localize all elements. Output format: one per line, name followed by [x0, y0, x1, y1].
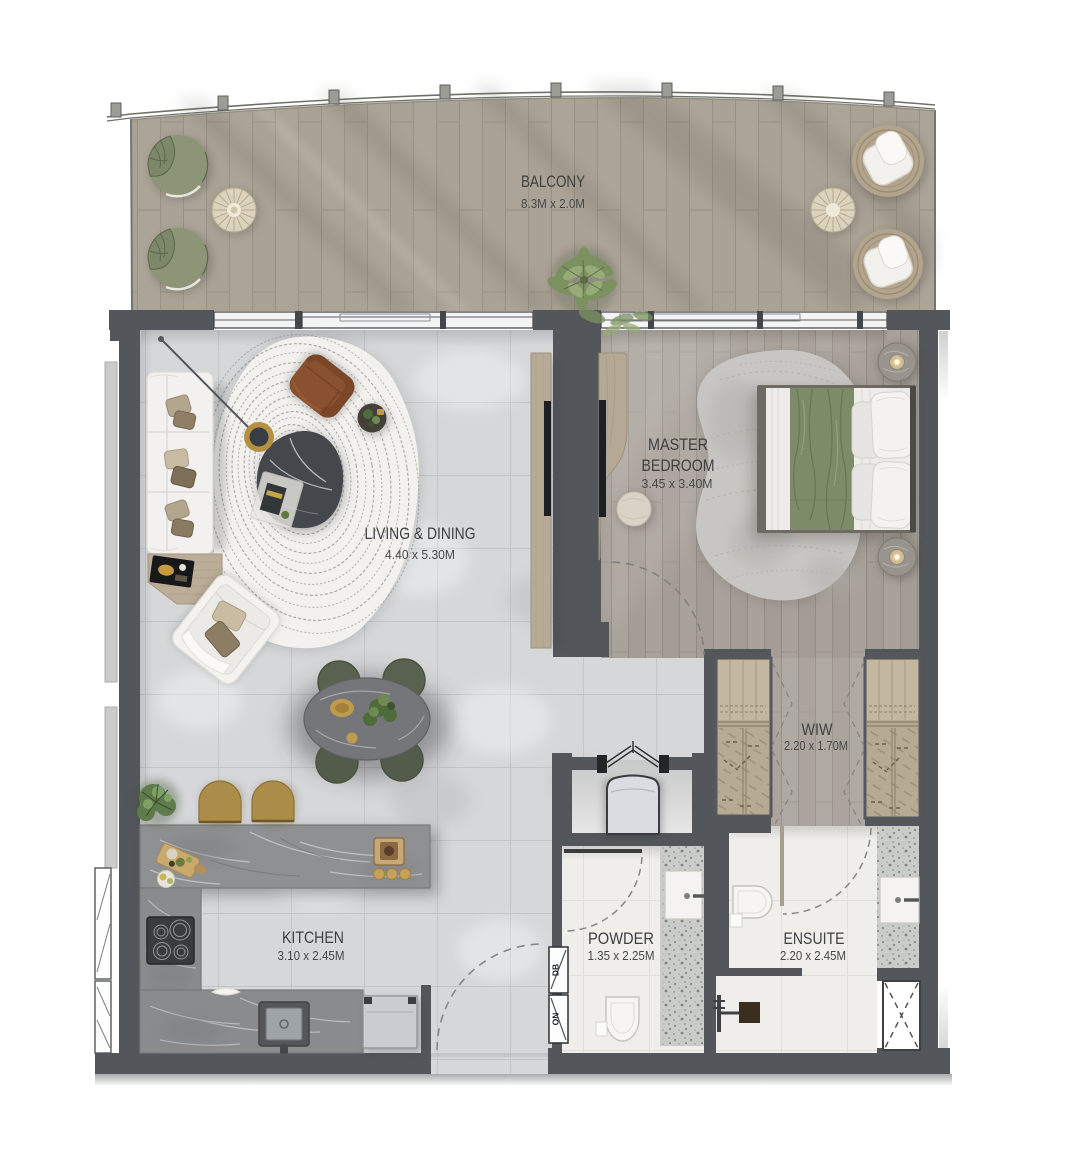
svg-text:BEDROOM: BEDROOM — [642, 457, 715, 475]
svg-text:POWDER: POWDER — [588, 930, 654, 948]
svg-text:4.40 x 5.30M: 4.40 x 5.30M — [385, 548, 455, 562]
svg-text:ENSUITE: ENSUITE — [784, 930, 845, 948]
svg-text:MASTER: MASTER — [648, 436, 708, 454]
svg-text:KITCHEN: KITCHEN — [282, 929, 344, 947]
svg-text:LIVING & DINING: LIVING & DINING — [365, 525, 476, 543]
svg-text:1.35 x 2.25M: 1.35 x 2.25M — [588, 949, 655, 963]
svg-text:3.10 x 2.45M: 3.10 x 2.45M — [278, 949, 345, 963]
svg-text:8.3M x 2.0M: 8.3M x 2.0M — [521, 197, 585, 211]
svg-text:WIW: WIW — [802, 721, 833, 739]
svg-text:BALCONY: BALCONY — [521, 173, 585, 191]
svg-text:3.45 x 3.40M: 3.45 x 3.40M — [642, 477, 713, 491]
svg-text:ON: ON — [551, 1013, 561, 1026]
svg-text:2.20 x 1.70M: 2.20 x 1.70M — [784, 739, 848, 753]
svg-text:2.20 x 2.45M: 2.20 x 2.45M — [780, 949, 846, 963]
svg-text:DB: DB — [551, 964, 561, 976]
